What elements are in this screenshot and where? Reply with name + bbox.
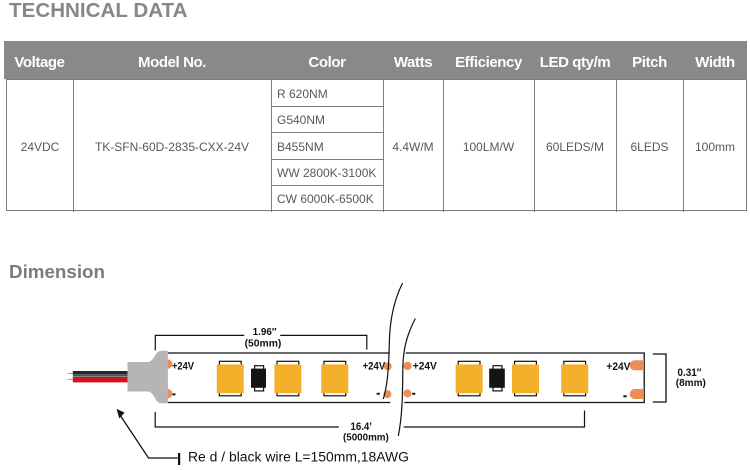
- svg-text:16.4’: 16.4’: [351, 421, 373, 433]
- svg-text:(8mm): (8mm): [676, 378, 706, 389]
- svg-text:+24V: +24V: [172, 360, 195, 372]
- svg-text:Re d / black wire L=150mm,18AW: Re d / black wire L=150mm,18AWG: [188, 450, 409, 465]
- svg-text:1.96″: 1.96″: [253, 326, 277, 338]
- svg-text:+24V: +24V: [606, 361, 631, 373]
- svg-text:(5000mm): (5000mm): [343, 432, 389, 443]
- svg-text:+24V: +24V: [413, 360, 438, 372]
- svg-text:(50mm): (50mm): [245, 339, 282, 350]
- svg-text:+24V: +24V: [363, 360, 386, 372]
